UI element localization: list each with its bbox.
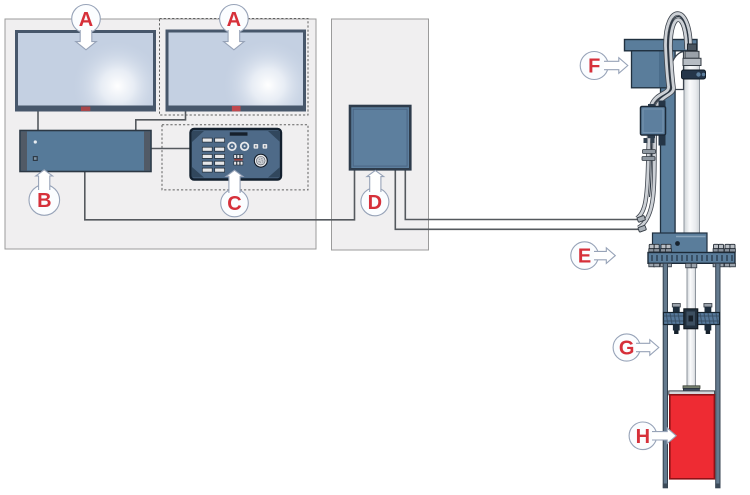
svg-text:A: A bbox=[227, 9, 241, 31]
svg-text:B: B bbox=[37, 190, 51, 212]
svg-text:F: F bbox=[588, 56, 600, 78]
svg-text:C: C bbox=[227, 193, 241, 215]
svg-text:G: G bbox=[619, 338, 635, 360]
svg-text:H: H bbox=[636, 426, 650, 448]
svg-text:E: E bbox=[578, 246, 591, 268]
svg-text:D: D bbox=[368, 192, 382, 214]
svg-text:A: A bbox=[79, 9, 93, 31]
